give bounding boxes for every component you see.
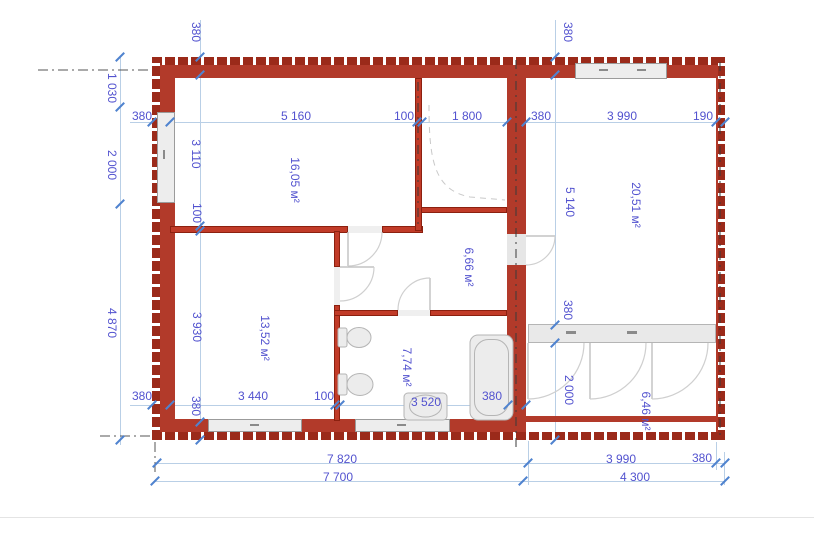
dim-label: 380 (189, 22, 203, 42)
dim-label: 1 030 (105, 73, 119, 103)
dim-label: 5 140 (563, 187, 577, 217)
plan-overlay (0, 0, 814, 548)
door-room1-swing (348, 232, 382, 266)
dim-label-total: 4 300 (620, 470, 650, 484)
dim-label: 380 (531, 109, 551, 123)
floor-plan-canvas: 380 5 160 100 1 800 380 3 990 190 1 030 … (0, 0, 814, 548)
dim-label: 1 800 (452, 109, 482, 123)
dim-label: 3 990 (606, 452, 636, 466)
dim-label: 100 (314, 389, 334, 403)
dim-label-total: 7 820 (327, 452, 357, 466)
dim-label: 3 990 (607, 109, 637, 123)
dim-label: 380 (189, 396, 203, 416)
room-area-label: 7,74 м² (400, 348, 414, 387)
room-area-label: 13,52 м² (258, 315, 272, 361)
dim-label-total: 7 700 (323, 470, 353, 484)
door-middle-wall-swing (526, 236, 555, 265)
door-room2-swing (340, 267, 374, 301)
dim-label: 2 000 (562, 375, 576, 405)
dim-label: 3 440 (238, 389, 268, 403)
dim-label: 3 930 (190, 312, 204, 342)
dim-label: 3 110 (189, 139, 203, 168)
dim-label: 4 870 (105, 308, 119, 338)
room-area-label: 16,05 м² (288, 157, 302, 203)
dim-label: 2 000 (105, 150, 119, 180)
dim-label: 380 (561, 22, 575, 42)
dim-label: 190 (693, 109, 713, 123)
toilet-icon (338, 374, 373, 396)
room-area-label: 20,51 м² (629, 182, 643, 228)
dim-label: 5 160 (281, 109, 311, 123)
room-area-label: 6,46 м² (639, 392, 653, 431)
dim-label: 380 (132, 109, 152, 123)
dim-label: 380 (482, 389, 502, 403)
room-area-label: 6,66 м² (462, 248, 476, 287)
door-bath-swing (398, 278, 430, 310)
dim-label: 380 (132, 389, 152, 403)
toilet-icon (338, 328, 371, 348)
dim-label: 100 (394, 109, 414, 123)
dim-label: 380 (561, 300, 575, 320)
dim-label: 380 (692, 451, 712, 465)
dim-label: 100 (190, 203, 204, 223)
dim-label: 3 520 (411, 395, 441, 409)
veranda-door-swings (528, 343, 708, 399)
